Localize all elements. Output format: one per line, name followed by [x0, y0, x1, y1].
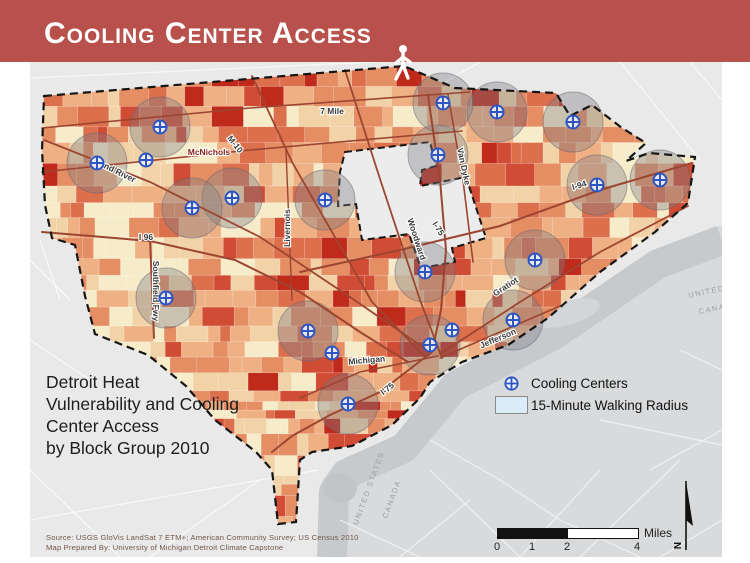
source-line: Source: USGS GloVis LandSat 7 ETM+; Amer…: [46, 533, 359, 543]
street-label: McNichols: [188, 147, 231, 157]
cooling-center-marker: [419, 266, 432, 279]
legend-row-walking-radius: 15-Minute Walking Radius: [494, 395, 688, 415]
map-title-line: Vulnerability and Cooling: [46, 393, 239, 415]
map-legend: Cooling Centers 15-Minute Walking Radius: [494, 373, 688, 417]
cooling-center-marker: [342, 398, 355, 411]
cooling-center-marker: [319, 194, 332, 207]
cooling-center-marker: [160, 292, 173, 305]
cooling-center-marker: [491, 106, 504, 119]
slide-title: Cooling Center Access: [44, 17, 372, 51]
detroit-map-canvas: UNITED STATESCANADAUNITED SCANADA7 MileM…: [30, 62, 722, 557]
source-block: Source: USGS GloVis LandSat 7 ETM+; Amer…: [46, 533, 359, 552]
cooling-center-marker: [432, 149, 445, 162]
cooling-center-marker: [424, 339, 437, 352]
legend-row-cooling-centers: Cooling Centers: [494, 373, 688, 393]
cooling-center-marker: [567, 116, 580, 129]
scale-tick: 4: [634, 541, 640, 553]
scale-bar: Miles 0 1 2 4: [497, 528, 677, 556]
cooling-center-marker: [529, 254, 542, 267]
slide: Cooling Center Access UNITED STATESCANAD…: [0, 0, 750, 563]
map-title-line: Detroit Heat: [46, 371, 239, 393]
cooling-center-marker: [326, 347, 339, 360]
cooling-center-marker: [654, 174, 667, 187]
radius-swatch: [494, 396, 528, 414]
cooling-center-marker: [302, 325, 315, 338]
street-label: Livernois: [282, 209, 292, 247]
legend-label: 15-Minute Walking Radius: [531, 398, 688, 413]
zug-island: [323, 473, 357, 503]
cooling-center-marker: [154, 121, 167, 134]
cooling-center-icon: [494, 375, 528, 392]
map-frame: UNITED STATESCANADAUNITED SCANADA7 MileM…: [30, 62, 722, 557]
scale-bar-unit: Miles: [644, 526, 672, 540]
cooling-center-marker: [446, 324, 459, 337]
scale-tick: 1: [529, 541, 535, 553]
cooling-center-marker: [591, 179, 604, 192]
cooling-center-marker: [226, 192, 239, 205]
walking-person-icon: [391, 44, 415, 86]
scale-bar-track: [497, 528, 639, 539]
cooling-center-marker: [140, 154, 153, 167]
source-line: Map Prepared By: University of Michigan …: [46, 543, 359, 553]
scale-tick: 2: [564, 541, 570, 553]
cooling-center-marker: [437, 97, 450, 110]
north-arrow-icon: N: [672, 478, 698, 558]
map-title-block: Detroit Heat Vulnerability and Cooling C…: [46, 371, 239, 459]
cooling-center-marker: [186, 202, 199, 215]
north-label: N: [672, 542, 682, 549]
map-title-line: by Block Group 2010: [46, 437, 239, 459]
street-label: Southfield Fwy: [151, 261, 161, 322]
title-bar: Cooling Center Access: [0, 0, 750, 62]
cooling-center-marker: [91, 157, 104, 170]
street-label: I 96: [139, 232, 153, 242]
street-label: 7 Mile: [320, 106, 344, 116]
map-title-line: Center Access: [46, 415, 239, 437]
scale-tick: 0: [494, 541, 500, 553]
legend-label: Cooling Centers: [531, 376, 628, 391]
cooling-center-marker: [507, 314, 520, 327]
